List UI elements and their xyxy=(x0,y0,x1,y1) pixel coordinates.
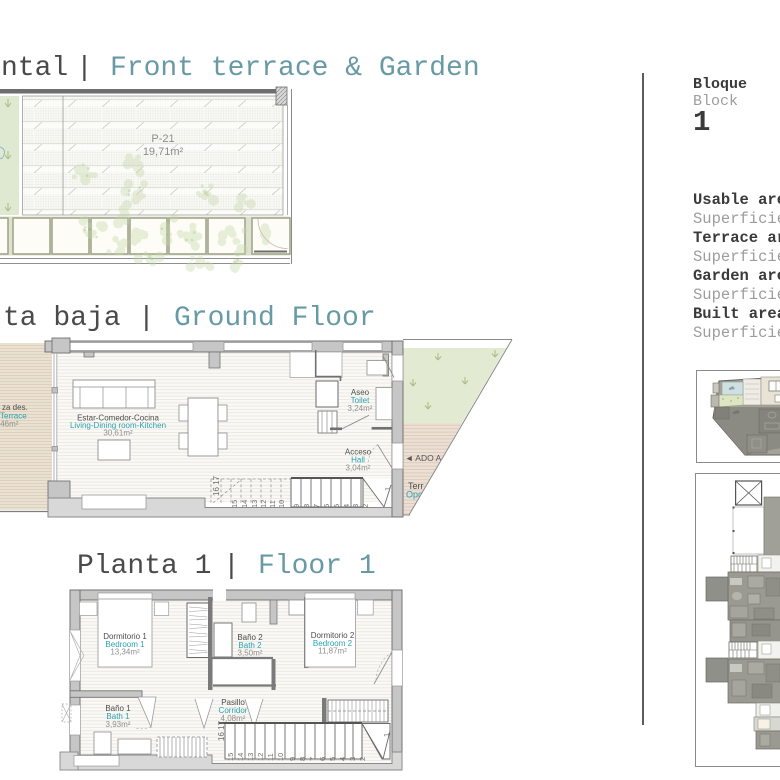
svg-text:10: 10 xyxy=(277,500,286,508)
svg-text:8: 8 xyxy=(302,504,311,508)
svg-text:11: 11 xyxy=(268,500,277,508)
svg-text:2: 2 xyxy=(358,757,367,761)
svg-text:9: 9 xyxy=(292,504,301,508)
svg-text:8: 8 xyxy=(298,757,307,761)
svg-text:2: 2 xyxy=(361,504,370,508)
svg-text:3,50m²: 3,50m² xyxy=(238,649,263,658)
svg-text:13,34m²: 13,34m² xyxy=(110,648,140,657)
svg-text:9: 9 xyxy=(288,757,297,761)
svg-text:30,61m²: 30,61m² xyxy=(103,429,133,438)
svg-text:7: 7 xyxy=(312,504,321,508)
svg-text:13: 13 xyxy=(246,753,255,761)
svg-text:,46m²: ,46m² xyxy=(0,420,19,429)
svg-text:6: 6 xyxy=(318,757,327,761)
svg-text:4,08m²: 4,08m² xyxy=(221,714,246,723)
svg-text:3: 3 xyxy=(348,757,357,761)
svg-text:16 17: 16 17 xyxy=(212,475,221,496)
svg-text:4: 4 xyxy=(342,504,351,508)
svg-text:◄ ADO A: ◄ ADO A xyxy=(405,453,442,463)
svg-text:7: 7 xyxy=(308,757,317,761)
svg-text:P-21: P-21 xyxy=(151,133,174,145)
svg-text:15: 15 xyxy=(230,500,239,508)
svg-text:14: 14 xyxy=(236,753,245,761)
svg-text:12: 12 xyxy=(259,500,268,508)
svg-text:10: 10 xyxy=(276,753,285,761)
svg-text:13: 13 xyxy=(250,500,259,508)
svg-text:6: 6 xyxy=(322,504,331,508)
svg-text:3: 3 xyxy=(351,504,360,508)
svg-text:Opci: Opci xyxy=(406,490,425,500)
svg-text:12: 12 xyxy=(256,753,265,761)
svg-text:3,93m²: 3,93m² xyxy=(106,720,131,729)
svg-text:1: 1 xyxy=(382,733,391,737)
svg-text:14: 14 xyxy=(240,500,249,508)
svg-text:3,04m²: 3,04m² xyxy=(346,464,371,473)
svg-text:16 17: 16 17 xyxy=(217,720,226,741)
svg-text:11: 11 xyxy=(266,753,275,761)
svg-text:5: 5 xyxy=(328,757,337,761)
svg-text:19,71m²: 19,71m² xyxy=(143,146,184,158)
svg-text:3,24m²: 3,24m² xyxy=(348,404,373,413)
svg-text:4: 4 xyxy=(338,757,347,761)
svg-text:5: 5 xyxy=(332,504,341,508)
svg-text:1: 1 xyxy=(383,487,392,491)
svg-text:15: 15 xyxy=(226,753,235,761)
svg-text:11,87m²: 11,87m² xyxy=(318,647,347,656)
